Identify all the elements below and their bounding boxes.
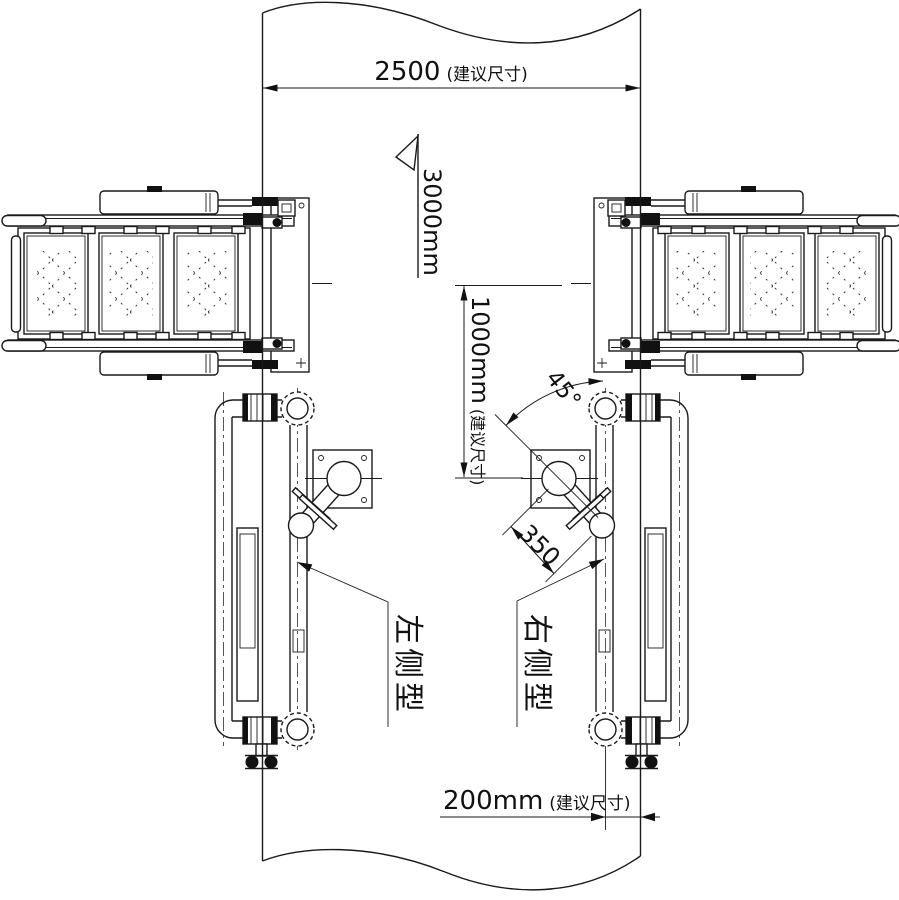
elevation-triangle-icon: [396, 136, 418, 170]
pipe-elbow-bottom: [215, 720, 233, 738]
dim-2500-label: 2500(建议尺寸): [374, 57, 527, 87]
dim-200-label: 200mm(建议尺寸): [443, 786, 631, 816]
pipe-elbow-top: [215, 400, 233, 418]
bottom-rail-end-cap: [2, 341, 46, 352]
leader-arrow-icon: [297, 562, 312, 572]
break-line-bottom: [263, 850, 641, 890]
break-line-top: [263, 2, 641, 43]
left-unit-assembly: [2, 186, 382, 769]
elevation-flag-3000: 3000mm: [396, 134, 446, 278]
top-rail-end-cap: [2, 216, 46, 227]
label-right-model: 右侧型: [517, 559, 604, 727]
side-trim-strip: [12, 236, 21, 332]
floor-bracket: [245, 744, 278, 769]
dim-1000-label: 1000mm(建议尺寸): [466, 296, 494, 485]
dim-350-label: 350: [514, 519, 566, 571]
installation-plan-drawing: 2500(建议尺寸) 3000mm 1000mm(建议尺寸) 45° 350 2…: [0, 0, 899, 900]
top-actuator-cylinder: [100, 191, 218, 214]
elevation-label: 3000mm: [418, 168, 446, 276]
glass-panel-1: [24, 233, 88, 334]
angle-label: 45°: [540, 366, 586, 414]
label-left-model: 左侧型: [297, 562, 425, 727]
right-unit-assembly: [521, 186, 899, 769]
machine-left: [2, 186, 332, 380]
pipe-coupling-bottom: [243, 717, 277, 744]
handrail-loop-left: [215, 388, 382, 769]
glass-panel-3: [174, 233, 238, 334]
right-model-text: 右侧型: [519, 614, 554, 716]
technical-drawing-page: 2500(建议尺寸) 3000mm 1000mm(建议尺寸) 45° 350 2…: [0, 0, 899, 900]
bottom-actuator-cylinder: [100, 352, 218, 375]
tube-clamp: [289, 513, 314, 538]
wall-section: [263, 2, 641, 889]
left-model-text: 左侧型: [390, 614, 425, 716]
dim-2500: 2500(建议尺寸): [263, 57, 640, 88]
rod-clevis: [252, 197, 278, 206]
glass-panel-2: [99, 233, 163, 334]
pivot-boss: [327, 462, 361, 496]
pipe-coupling-top: [243, 394, 277, 421]
